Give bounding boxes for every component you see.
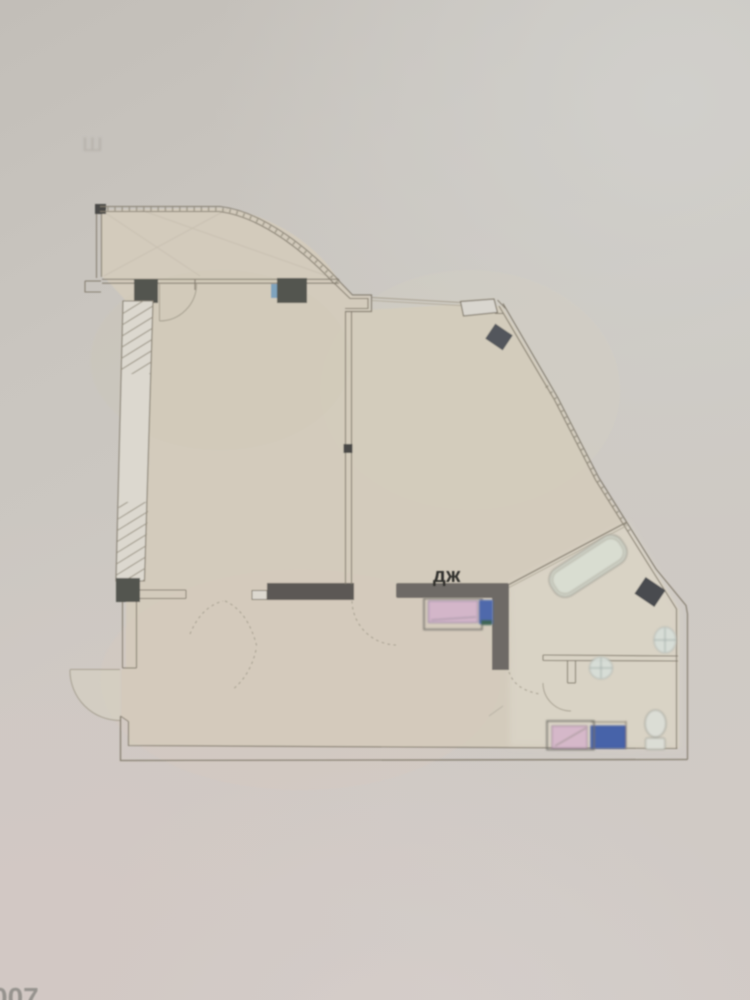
svg-text:007: 007 <box>0 982 39 1000</box>
svg-text:дж: дж <box>433 565 461 587</box>
svg-text:ш: ш <box>82 127 104 157</box>
